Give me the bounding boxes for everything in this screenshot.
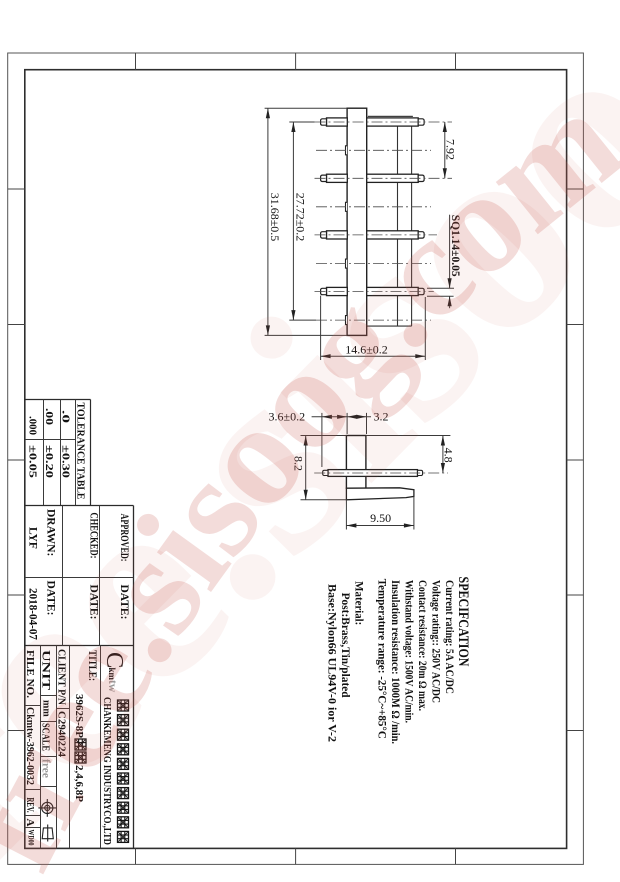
svg-text:Post:Brass,Tin/plated: Post:Brass,Tin/plated (339, 593, 353, 698)
svg-text:.0: .0 (60, 410, 72, 424)
svg-text:.000: .000 (27, 416, 39, 435)
svg-text:Current rating: 5A AC/DC: Current rating: 5A AC/DC (443, 580, 457, 694)
svg-text:Contact resistance: 20m Ω max: Contact resistance: 20m Ω max. (416, 580, 430, 711)
svg-text:Temperature range: -25°C~+85°: Temperature range: -25°C~+85°C (376, 579, 390, 739)
svg-text:.00: .00 (43, 408, 55, 426)
svg-text:Voltage rating:: 250V AC/DC: Voltage rating:: 250V AC/DC (430, 580, 444, 703)
svg-text:Insulation resistance: 1000M: Insulation resistance: 1000M Ω /min. (389, 580, 403, 744)
svg-text:Withstand voltage: 1500V AC/m: Withstand voltage: 1500V AC/min. (403, 580, 417, 723)
svg-text:Material:: Material: (353, 581, 367, 625)
